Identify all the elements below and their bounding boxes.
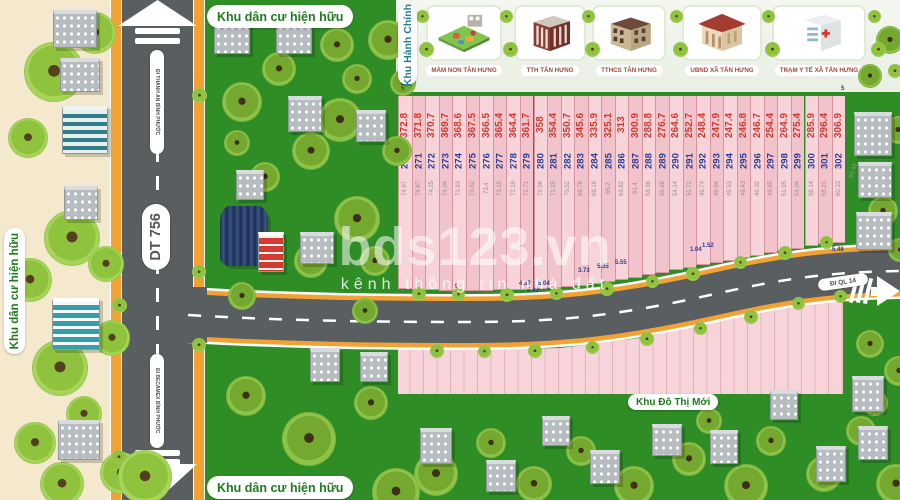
- plot-area-label: 248.4: [698, 102, 708, 148]
- plot-frontage-label: 72.71: [524, 175, 530, 202]
- plot-area-label: 264.6: [671, 102, 681, 148]
- building-icon: [856, 212, 892, 250]
- plot-frontage-label: 54.14: [673, 175, 679, 202]
- plot-number-label: 275: [468, 151, 478, 172]
- plot-frontage-label: 60.33: [836, 175, 842, 202]
- plot-area-label: 275.4: [793, 102, 803, 148]
- plot-frontage-label: 49.85: [768, 175, 774, 202]
- building-icon: [356, 110, 386, 142]
- dimension-label: 3.73: [578, 268, 590, 274]
- building-icon: [360, 352, 388, 382]
- tree-icon: [476, 428, 506, 458]
- tree-icon: [686, 267, 700, 281]
- plot-column: 296.430158.23: [818, 96, 832, 244]
- plot-frontage-label: 63.82: [619, 175, 625, 202]
- dimension-label: 5.55: [615, 260, 627, 266]
- plot-frontage-label: 66.2: [606, 175, 612, 202]
- plot-number-label: 298: [780, 151, 790, 172]
- building-icon: [310, 348, 340, 382]
- plot-number-label: 286: [617, 151, 627, 172]
- plot-frontage-label: 58.96: [646, 175, 652, 202]
- tree-icon: [452, 288, 465, 301]
- tree-icon: [352, 298, 378, 324]
- plot-frontage-label: 51.95: [782, 175, 788, 202]
- plot-frontage-label: 73.4: [484, 175, 490, 202]
- tree-icon: [744, 310, 758, 324]
- dimension-label: 5: [401, 86, 404, 92]
- plot-frontage-label: 72.98: [538, 175, 544, 202]
- plot-area-label: 296.4: [820, 102, 830, 148]
- tree-icon: [792, 297, 805, 310]
- plot-number-label: 290: [672, 151, 682, 172]
- plot-number-label: 291: [685, 151, 695, 172]
- zone-label-residential-top: Khu dân cư hiện hữu: [207, 5, 353, 28]
- building-icon: [53, 10, 97, 48]
- plot-area-label: 350.7: [563, 102, 573, 148]
- plot-number-label: 271: [414, 151, 424, 172]
- plot-frontage-label: 49.64: [714, 175, 720, 202]
- tree-icon: [282, 412, 336, 466]
- plot-number-label: 280: [536, 151, 546, 172]
- plot-column: 246.829549.43: [737, 96, 751, 258]
- plot-column: 288.828858.96: [642, 96, 656, 275]
- plot-column: 368.627473.83: [452, 96, 466, 291]
- tree-icon: [228, 282, 256, 310]
- plot-column: 300.928761.4: [628, 96, 642, 278]
- plot-number-label: 299: [793, 151, 803, 172]
- plot-number-label: 272: [428, 151, 438, 172]
- dimension-label: 1.52: [702, 243, 714, 249]
- plot-frontage-label: 73.62: [470, 175, 476, 202]
- plot-area-label: 264.9: [780, 102, 790, 148]
- tree-icon: [778, 246, 792, 260]
- tree-icon: [118, 450, 172, 500]
- plot-area-label: 369.7: [441, 102, 451, 148]
- tree-icon: [112, 298, 127, 313]
- plot-number-label: 285: [604, 151, 614, 172]
- plot-column: 264.629054.14: [669, 96, 683, 270]
- tree-icon: [550, 287, 563, 300]
- tree-icon: [416, 10, 429, 23]
- dimension-label: 5.48: [832, 247, 844, 253]
- building-icon: [420, 428, 452, 464]
- plot-frontage-label: 58.23: [822, 175, 828, 202]
- plot-column: 31328663.82: [615, 96, 629, 280]
- tree-icon: [762, 10, 775, 23]
- tree-icon: [614, 466, 654, 500]
- plot-area-label: 371.8: [414, 102, 424, 148]
- plot-area-label: 345.6: [576, 102, 586, 148]
- tree-icon: [192, 88, 207, 103]
- tree-icon: [88, 246, 124, 282]
- plot-number-label: 296: [753, 151, 763, 172]
- plot-frontage-label: 74.67: [402, 175, 408, 202]
- building-icon: [816, 446, 846, 482]
- plot-frontage-label: 49.74: [700, 175, 706, 202]
- tree-icon: [503, 42, 518, 57]
- tree-icon: [40, 462, 84, 500]
- tree-icon: [262, 52, 296, 86]
- plot-column: 276.728956.98: [655, 96, 669, 273]
- tree-icon: [500, 10, 513, 23]
- direction-label-north: ĐI THANH AN BÌNH PHƯỚC: [150, 50, 164, 154]
- building-icon: [58, 420, 100, 460]
- plot-number-label: 281: [550, 151, 560, 172]
- plot-column: 264.929851.95: [777, 96, 791, 251]
- north-arrow-icon: [118, 0, 197, 26]
- admin-building-card: TRẠM Y TẾ XÃ TÂN HƯNG: [772, 5, 866, 77]
- plot-area-label: 306.9: [834, 102, 844, 148]
- plot-column: 275.429954.04: [791, 96, 805, 249]
- plot-column: 35828072.98: [534, 96, 548, 289]
- tree-icon: [226, 376, 266, 416]
- plot-number-label: 287: [631, 151, 641, 172]
- plot-number-label: 278: [509, 151, 519, 172]
- building-icon: [854, 112, 892, 156]
- plot-number-label: 277: [495, 151, 505, 172]
- tree-icon: [372, 468, 420, 500]
- school-icon: [514, 5, 586, 61]
- direction-label-south: ĐI BECAMEX BÌNH PHƯỚC: [150, 354, 164, 448]
- plot-area-label: 367.5: [468, 102, 478, 148]
- plot-column: 325.128566.2: [601, 96, 615, 282]
- tree-icon: [724, 464, 768, 500]
- zone-label-new-urban: Khu Đô Thị Mới: [628, 394, 718, 410]
- building-icon: [52, 298, 100, 350]
- tree-icon: [224, 130, 250, 156]
- building-icon: [486, 460, 516, 492]
- tree-icon: [354, 386, 388, 420]
- plot-frontage-label: 69.78: [578, 175, 584, 202]
- admin-building-card: UBND XÃ TÂN HƯNG: [682, 5, 762, 77]
- plot-number-label: 284: [590, 151, 600, 172]
- plot-area-label: 247.9: [712, 102, 722, 148]
- tree-icon: [670, 10, 683, 23]
- dimension-label: 5.43: [527, 288, 539, 294]
- plot-number-label: 276: [482, 151, 492, 172]
- arrow-bar: [135, 28, 180, 34]
- plot-number-label: 273: [441, 151, 451, 172]
- plot-column: 335.928468.18: [588, 96, 602, 284]
- town-hall-icon: [682, 5, 762, 61]
- plot-area-label: 252.7: [685, 102, 695, 148]
- plot-number-label: 292: [699, 151, 709, 172]
- tree-icon: [14, 422, 56, 464]
- admin-building-card: TTH TÂN HƯNG: [514, 5, 586, 77]
- tree-icon: [192, 265, 206, 279]
- admin-building-label: TTH TÂN HƯNG: [520, 64, 579, 77]
- building-icon: [652, 424, 682, 456]
- plot-area-label: 285.9: [807, 102, 817, 148]
- tree-icon: [582, 10, 595, 23]
- plot-column: 252.729151.72: [683, 96, 697, 268]
- plot-column: 371.827174.67: [412, 96, 426, 290]
- plot-column: 350.728270.52: [561, 96, 575, 287]
- plot-area-label: 370.7: [427, 102, 437, 148]
- plot-column: 370.727274.25: [425, 96, 439, 290]
- plot-area-label: 335.9: [590, 102, 600, 148]
- plot-area-label: 246.7: [753, 102, 763, 148]
- health-station-icon: [772, 5, 866, 61]
- tree-icon: [871, 42, 886, 57]
- plot-table: 372.827074.67371.827174.67370.727274.253…: [398, 96, 847, 306]
- tree-icon: [528, 344, 542, 358]
- dimension-label: 5.35: [597, 264, 609, 270]
- plot-frontage-label: 74.67: [416, 175, 422, 202]
- plot-area-label: 368.6: [454, 102, 464, 148]
- plot-frontage-label: 68.18: [592, 175, 598, 202]
- plot-frontage-label: 74.25: [429, 175, 435, 202]
- building-icon: [858, 162, 892, 198]
- building-icon: [60, 58, 100, 92]
- tree-icon: [334, 196, 380, 242]
- secondary-school-icon: [592, 5, 666, 61]
- building-icon: [542, 416, 570, 446]
- tree-icon: [834, 290, 847, 303]
- plot-frontage-label: 51.72: [687, 175, 693, 202]
- tree-icon: [320, 28, 354, 62]
- admin-building-label: TTHCS TÂN HƯNG: [595, 64, 663, 77]
- tree-icon: [868, 10, 881, 23]
- plot-column: 254.429749.85: [764, 96, 778, 253]
- tree-icon: [756, 426, 786, 456]
- building-icon: [236, 170, 264, 200]
- plot-number-label: 283: [577, 151, 587, 172]
- plot-frontage-label: 61.4: [633, 175, 639, 202]
- tree-icon: [734, 256, 747, 269]
- plot-column: 366.527673.4: [479, 96, 493, 291]
- plot-area-label: 313: [617, 102, 627, 148]
- plot-area-label: 276.7: [658, 102, 668, 148]
- tree-icon: [765, 42, 780, 57]
- plot-area-label: 365.4: [495, 102, 505, 148]
- tree-icon: [112, 450, 126, 464]
- tree-icon: [856, 330, 884, 358]
- plot-number-label: 294: [726, 151, 736, 172]
- road-dt756: ĐI THANH AN BÌNH PHƯỚC DT 756 ĐI BECAMEX…: [110, 0, 205, 500]
- plot-column: 367.527573.62: [466, 96, 480, 291]
- plot-column: 246.729649.32: [750, 96, 764, 256]
- tree-icon: [884, 356, 900, 386]
- tree-icon: [858, 64, 882, 88]
- tree-icon: [600, 282, 614, 296]
- admin-building-label: MẦM NON TÂN HƯNG: [425, 64, 502, 77]
- plot-frontage-label: 70.52: [565, 175, 571, 202]
- plot-number-label: 288: [644, 151, 654, 172]
- plot-frontage-label: 71.25: [551, 175, 557, 202]
- tree-icon: [412, 287, 426, 301]
- plot-number-label: 282: [563, 151, 573, 172]
- arrow-bar: [135, 38, 180, 44]
- dimension-label: 1.04: [690, 247, 702, 253]
- admin-zone-label: Khu Hành Chính: [398, 5, 417, 85]
- plot-area-label: 300.9: [631, 102, 641, 148]
- plot-column: 285.930056.14: [805, 96, 819, 246]
- plot-frontage-label: 49.43: [741, 175, 747, 202]
- tree-icon: [888, 64, 900, 78]
- building-icon: [64, 186, 98, 220]
- zone-label-residential-left: Khu dân cư hiện hữu: [4, 228, 25, 354]
- plot-frontage-label: 73.19: [497, 175, 503, 202]
- plot-area-label: 361.7: [522, 102, 532, 148]
- zone-label-residential-bottom: Khu dân cư hiện hữu: [207, 476, 353, 499]
- plot-frontage-label: 56.14: [809, 175, 815, 202]
- tree-icon: [646, 275, 659, 288]
- tree-icon: [292, 132, 330, 170]
- road-name-label: DT 756: [142, 204, 170, 270]
- building-icon: [710, 430, 738, 464]
- plot-number-label: 300: [807, 151, 817, 172]
- plot-number-label: 293: [712, 151, 722, 172]
- plot-area-label: 247.4: [725, 102, 735, 148]
- tree-icon: [673, 42, 688, 57]
- tree-icon: [640, 332, 654, 346]
- plot-column: 369.727374.04: [439, 96, 453, 291]
- tree-icon: [586, 341, 599, 354]
- admin-zone-panel: MẦM NON TÂN HƯNGTTH TÂN HƯNGTTHCS TÂN HƯ…: [396, 0, 900, 92]
- admin-building-label: TRẠM Y TẾ XÃ TÂN HƯNG: [774, 64, 864, 77]
- tree-icon: [192, 338, 206, 352]
- dimension-label: 5: [455, 284, 458, 290]
- plot-area-label: 364.4: [509, 102, 519, 148]
- plot-column: 365.427773.19: [493, 96, 507, 290]
- plot-number-label: 279: [522, 151, 532, 172]
- tree-icon: [516, 466, 552, 500]
- admin-building-card: MẦM NON TÂN HƯNG: [426, 5, 502, 77]
- tree-icon: [382, 136, 412, 166]
- tree-icon: [430, 344, 444, 358]
- tree-icon: [585, 42, 600, 57]
- plot-frontage-label: 72.19: [511, 175, 517, 202]
- plot-column: 345.628369.78: [574, 96, 588, 286]
- land-plot-map[interactable]: ĐI THANH AN BÌNH PHƯỚC DT 756 ĐI BECAMEX…: [0, 0, 900, 500]
- plot-column: 361.727972.71: [520, 96, 534, 290]
- admin-building-card: TTHCS TÂN HƯNG: [592, 5, 666, 77]
- plot-number-label: 274: [455, 151, 465, 172]
- building-icon: [300, 232, 334, 264]
- kindergarten-icon: [426, 5, 502, 61]
- plot-frontage-label: 74.04: [443, 175, 449, 202]
- plot-column: 354.428171.25: [547, 96, 561, 288]
- plot-number-label: 289: [658, 151, 668, 172]
- plot-frontage-label: 49.53: [727, 175, 733, 202]
- building-icon: [62, 106, 108, 154]
- dimension-label: 5.04: [538, 281, 550, 287]
- building-icon: [288, 96, 322, 132]
- plot-area-label: 325.1: [604, 102, 614, 148]
- tree-icon: [478, 345, 491, 358]
- building-icon: [590, 450, 620, 484]
- tree-icon: [694, 322, 707, 335]
- tree-icon: [500, 288, 514, 302]
- building-icon: [770, 390, 798, 420]
- plot-number-label: 295: [739, 151, 749, 172]
- plot-column: 247.429449.53: [723, 96, 737, 261]
- admin-building-label: UBND XÃ TÂN HƯNG: [684, 64, 759, 77]
- plot-frontage-label: 54.04: [795, 175, 801, 202]
- plot-frontage-label: 56.98: [660, 175, 666, 202]
- plot-column: 372.827074.67: [398, 96, 412, 289]
- plot-area-label: 246.8: [739, 102, 749, 148]
- tree-icon: [342, 64, 372, 94]
- tree-icon: [876, 464, 900, 500]
- plot-frontage-label: 73.83: [456, 175, 462, 202]
- plot-area-label: 358: [536, 102, 546, 148]
- plot-area-label: 288.8: [644, 102, 654, 148]
- sidewalk: [193, 0, 205, 500]
- plot-column: 248.429249.74: [696, 96, 710, 265]
- plot-area-label: 354.4: [549, 102, 559, 148]
- building-icon: [858, 426, 888, 460]
- tree-icon: [419, 42, 434, 57]
- plot-area-label: 254.4: [766, 102, 776, 148]
- plot-area-label: 366.5: [482, 102, 492, 148]
- tree-icon: [8, 118, 48, 158]
- tree-icon: [360, 246, 390, 276]
- plot-column: 247.929349.64: [710, 96, 724, 263]
- dimension-label: 5: [841, 86, 844, 92]
- plot-number-label: 297: [766, 151, 776, 172]
- building-icon: [258, 232, 284, 272]
- plot-number-label: 301: [821, 151, 831, 172]
- plot-column: 364.427872.19: [506, 96, 520, 290]
- dimension-label: 4.37: [519, 281, 531, 287]
- building-icon: [852, 376, 884, 412]
- plot-number-label: 302: [834, 151, 844, 172]
- new-urban-plots: [396, 296, 845, 396]
- plot-column: 306.930260.33: [832, 96, 846, 243]
- plot-frontage-label: 49.32: [755, 175, 761, 202]
- tree-icon: [222, 82, 262, 122]
